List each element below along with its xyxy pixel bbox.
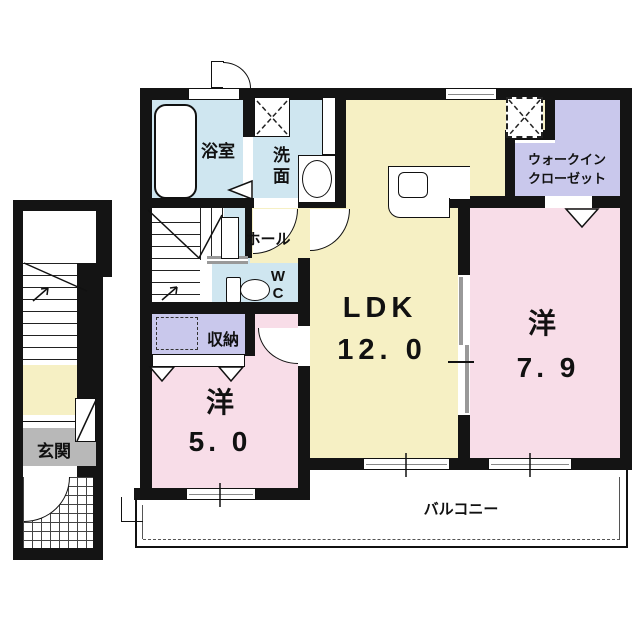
stair2f-arrow [162, 287, 177, 300]
fridge-x [509, 100, 540, 135]
bath-door-triangle [229, 181, 252, 199]
label-west79-name: 洋 [522, 302, 562, 342]
washer-x [257, 101, 287, 134]
stair1f-arrow [33, 288, 48, 301]
floor-plan: 浴室 洗面 ホール WC 収納 洋 5. 0 LDK 12. 0 洋 7. 9 … [0, 0, 640, 640]
label-west5-size: 5. 0 [165, 426, 275, 458]
label-wic-line1: ウォークイン [510, 149, 624, 168]
label-bath: 浴室 [188, 137, 248, 162]
washer-x [257, 101, 287, 134]
fridge-x [509, 100, 540, 135]
wic-door-v [566, 209, 598, 227]
stair1f-diagonal [24, 263, 87, 291]
label-ldk-size: 12. 0 [322, 334, 442, 367]
label-ldk-name: LDK [325, 292, 435, 325]
stair2f-diagonal-b [199, 215, 222, 258]
label-wic-line2: クローゼット [510, 168, 624, 187]
label-wc: WC [270, 268, 286, 302]
label-west5-name: 洋 [200, 381, 240, 421]
label-washroom: 洗面 [272, 146, 292, 188]
label-hall: ホール [238, 228, 298, 249]
label-west79-size: 7. 9 [493, 352, 603, 384]
stair2f-diagonal-a [148, 210, 199, 258]
closet-bifold-v [150, 367, 174, 381]
label-storage: 収納 [198, 326, 248, 350]
label-balcony: バルコニー [406, 498, 516, 519]
genkan-door-diagonal [77, 400, 96, 441]
label-genkan: 玄関 [26, 437, 82, 462]
closet-bifold-v [219, 367, 243, 381]
